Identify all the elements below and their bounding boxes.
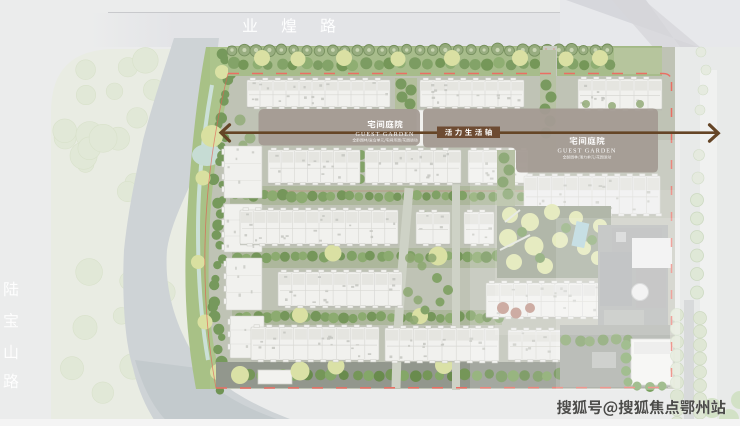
svg-text:GUEST GARDEN: GUEST GARDEN xyxy=(356,132,415,138)
svg-text:GUEST GARDEN: GUEST GARDEN xyxy=(558,149,617,155)
